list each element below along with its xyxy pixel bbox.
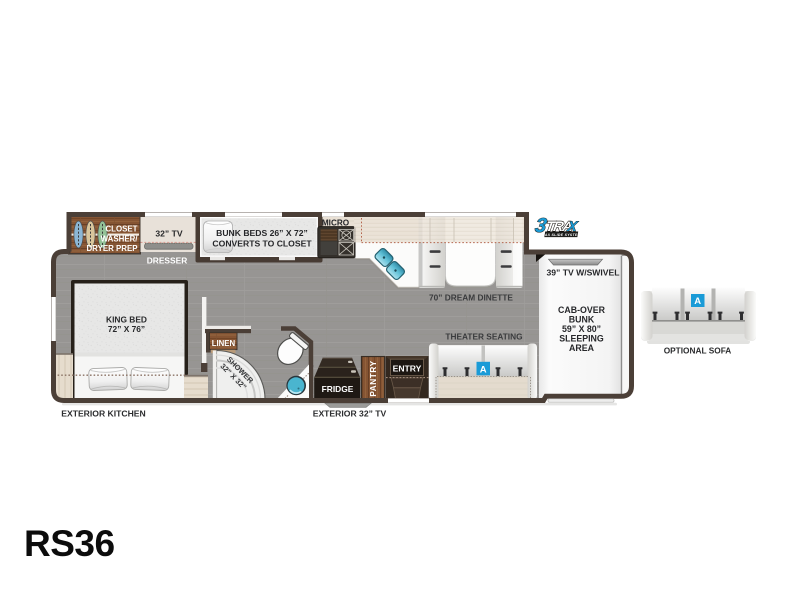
svg-text:BUNK: BUNK <box>569 315 595 325</box>
svg-text:72” X 76”: 72” X 76” <box>108 324 145 334</box>
svg-text:PANTRY: PANTRY <box>369 360 378 396</box>
svg-text:CONVERTS TO CLOSET: CONVERTS TO CLOSET <box>212 238 312 248</box>
svg-text:59” X 80”: 59” X 80” <box>562 324 601 334</box>
svg-text:39” TV W/SWIVEL: 39” TV W/SWIVEL <box>546 268 619 278</box>
svg-text:70” DREAM DINETTE: 70” DREAM DINETTE <box>429 293 513 303</box>
svg-text:RS36: RS36 <box>24 523 115 564</box>
svg-text:KING BED: KING BED <box>106 315 147 325</box>
svg-text:OPTIONAL SOFA: OPTIONAL SOFA <box>664 345 732 355</box>
svg-text:THEATER SEATING: THEATER SEATING <box>445 331 522 341</box>
svg-text:WASHER/: WASHER/ <box>101 234 139 243</box>
svg-text:FRIDGE: FRIDGE <box>322 384 354 394</box>
svg-text:32” TV: 32” TV <box>155 229 182 239</box>
svg-text:CLOSET: CLOSET <box>105 225 137 234</box>
svg-text:MAX SLIDE SYSTEM: MAX SLIDE SYSTEM <box>541 233 581 237</box>
svg-text:EXTERIOR 32” TV: EXTERIOR 32” TV <box>313 409 387 419</box>
svg-text:AREA: AREA <box>569 343 595 353</box>
svg-text:DRESSER: DRESSER <box>147 256 188 266</box>
svg-text:EXTERIOR KITCHEN: EXTERIOR KITCHEN <box>61 409 146 419</box>
svg-text:DRYER PREP: DRYER PREP <box>86 244 137 253</box>
svg-text:A: A <box>694 296 701 307</box>
svg-text:SLEEPING: SLEEPING <box>559 334 604 344</box>
svg-text:A: A <box>480 364 487 375</box>
svg-text:BUNK BEDS 26” X 72”: BUNK BEDS 26” X 72” <box>216 228 308 238</box>
svg-text:CAB-OVER: CAB-OVER <box>558 305 606 315</box>
svg-text:LINEN: LINEN <box>212 339 236 348</box>
svg-text:ENTRY: ENTRY <box>393 363 422 373</box>
